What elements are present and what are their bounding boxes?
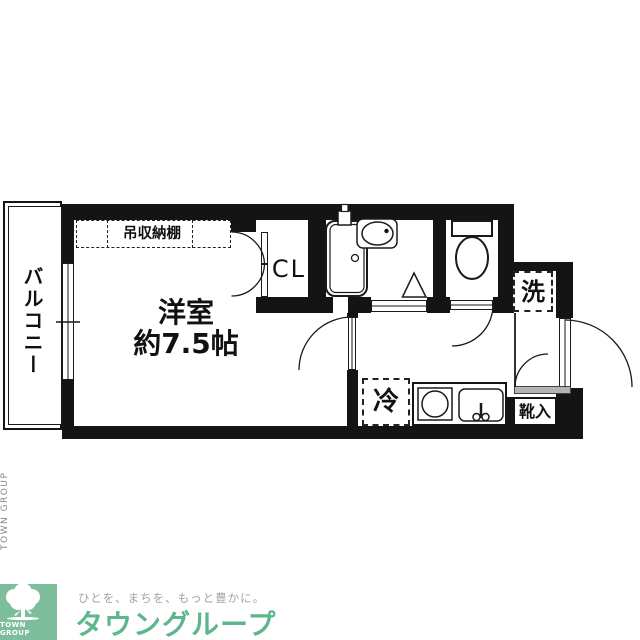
bath-door-triangle [403, 273, 427, 297]
shoebox-label: 靴入 [513, 397, 557, 426]
stove-burner [422, 391, 448, 417]
washer-label: 洗 [513, 271, 553, 312]
room-size: 約7.5帖 [96, 328, 276, 359]
basin-faucet-dot [384, 229, 388, 233]
stove [418, 388, 452, 420]
bath-faucet-stub [342, 205, 349, 212]
sink-faucet-knob [482, 414, 489, 421]
brand-company-name: タウングループ [75, 603, 276, 640]
bathtub-drain [352, 255, 359, 262]
toilet-door-arc [452, 305, 493, 346]
side-brand-text: TOWN GROUP [0, 448, 13, 550]
closet-door-arc-bottom [232, 263, 265, 296]
room-label: 洋室 約7.5帖 [96, 297, 276, 359]
room-name: 洋室 [96, 297, 276, 328]
bath-faucet [338, 211, 351, 225]
sink-faucet-knob [473, 414, 480, 421]
fridge-label: 冷 [362, 378, 410, 426]
closet-door-arc-top [232, 232, 265, 265]
basin-counter [357, 219, 397, 248]
entry-door-arc [565, 320, 632, 387]
balcony-label: バルコニー [22, 266, 42, 376]
shelf-label: 吊収納棚 [112, 224, 192, 245]
floorplan-page: バルコニー 吊収納棚 CL 洋室 約7.5帖 洗 冷 靴入 TOWN GROUP… [0, 0, 640, 640]
tree-icon [0, 584, 46, 622]
toilet-bowl [456, 237, 488, 279]
closet-label: CL [268, 250, 310, 288]
logo-caption: TOWN GROUP [0, 621, 57, 637]
shoebox-door-arc [515, 354, 548, 387]
toilet-tank [452, 221, 492, 236]
room-door-arc [299, 317, 352, 370]
company-logo: TOWN GROUP [0, 584, 57, 640]
